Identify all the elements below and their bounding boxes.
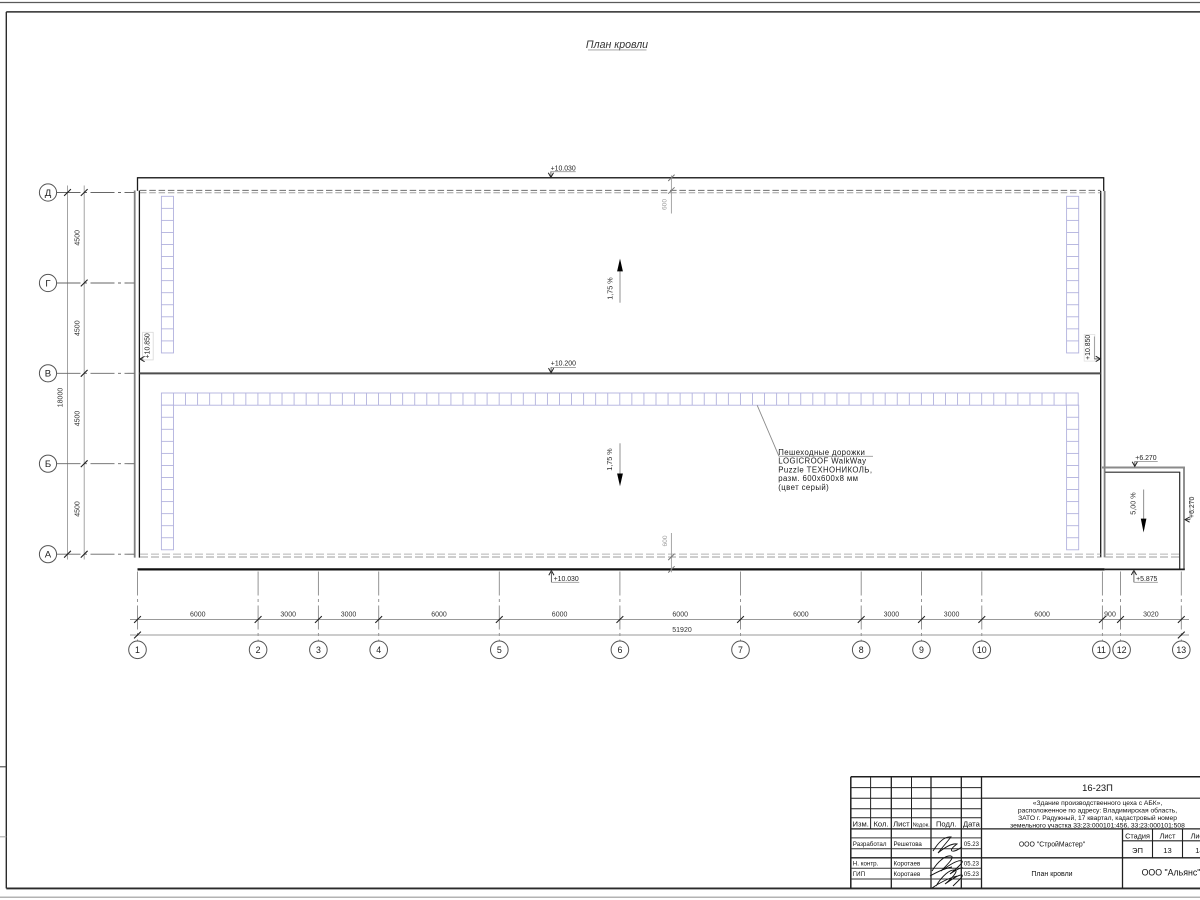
- svg-text:№док.: №док.: [913, 821, 931, 828]
- svg-text:11: 11: [1097, 645, 1106, 655]
- svg-text:Лист: Лист: [1191, 832, 1200, 841]
- svg-text:4500: 4500: [74, 501, 81, 517]
- svg-text:900: 900: [1104, 612, 1116, 619]
- svg-text:разм. 600х600х8 мм: разм. 600х600х8 мм: [778, 474, 858, 483]
- svg-text:Пешеходные дорожки: Пешеходные дорожки: [778, 448, 865, 457]
- svg-text:ЭП: ЭП: [1132, 846, 1143, 855]
- svg-text:Puzzle ТЕХНОНИКОЛЬ,: Puzzle ТЕХНОНИКОЛЬ,: [778, 465, 872, 474]
- svg-text:Стадия: Стадия: [1125, 832, 1150, 841]
- svg-text:10: 10: [977, 645, 987, 655]
- svg-text:5: 5: [497, 645, 502, 655]
- svg-text:3020: 3020: [1143, 612, 1159, 619]
- svg-text:18000: 18000: [58, 388, 65, 408]
- svg-text:План кровли: План кровли: [586, 39, 648, 51]
- svg-text:+10.850: +10.850: [1085, 335, 1092, 360]
- svg-text:Дата: Дата: [963, 820, 981, 829]
- svg-text:Коротаев: Коротаев: [894, 871, 921, 878]
- svg-text:2: 2: [256, 645, 261, 655]
- svg-text:1: 1: [135, 645, 140, 655]
- svg-text:Кол.: Кол.: [873, 820, 888, 829]
- svg-text:3000: 3000: [341, 612, 357, 619]
- svg-text:Решетова: Решетова: [894, 841, 923, 848]
- svg-text:расположенное по адресу: Влади: расположенное по адресу: Владимирская об…: [1018, 807, 1177, 815]
- svg-text:13: 13: [1163, 846, 1171, 855]
- svg-text:8: 8: [859, 645, 864, 655]
- svg-text:«Здание производственного цеха: «Здание производственного цеха с АБК»,: [1033, 800, 1163, 807]
- svg-text:Изм.: Изм.: [853, 820, 869, 829]
- svg-text:А: А: [45, 550, 52, 561]
- svg-text:ООО "СтройМастер": ООО "СтройМастер": [1019, 840, 1086, 848]
- svg-text:Подл.: Подл.: [936, 820, 957, 829]
- svg-text:LOGICROOF WalkWay: LOGICROOF WalkWay: [778, 457, 866, 466]
- svg-text:1,75 %: 1,75 %: [605, 448, 614, 471]
- svg-text:(цвет серый): (цвет серый): [778, 483, 829, 492]
- svg-text:План кровли: План кровли: [1031, 871, 1072, 878]
- svg-text:6000: 6000: [190, 612, 206, 619]
- svg-text:3000: 3000: [280, 612, 296, 619]
- svg-text:Лист: Лист: [893, 820, 910, 829]
- svg-text:600: 600: [662, 199, 669, 210]
- svg-text:+10.200: +10.200: [551, 360, 576, 367]
- svg-text:В: В: [45, 369, 51, 380]
- svg-text:9: 9: [919, 645, 924, 655]
- svg-text:4500: 4500: [74, 320, 81, 336]
- svg-text:7: 7: [738, 645, 743, 655]
- svg-text:6000: 6000: [672, 612, 688, 619]
- svg-text:3: 3: [316, 645, 321, 655]
- svg-text:6000: 6000: [793, 612, 809, 619]
- svg-text:05.23: 05.23: [964, 872, 980, 878]
- svg-text:Д: Д: [45, 188, 52, 199]
- svg-text:4500: 4500: [74, 411, 81, 427]
- svg-text:1,75 %: 1,75 %: [605, 277, 614, 300]
- svg-text:6000: 6000: [431, 612, 447, 619]
- svg-text:6: 6: [617, 645, 622, 655]
- svg-text:6000: 6000: [552, 612, 568, 619]
- svg-text:05.23: 05.23: [964, 862, 980, 868]
- svg-text:Разработал: Разработал: [853, 841, 887, 848]
- svg-text:ООО "Альянс": ООО "Альянс": [1142, 867, 1200, 877]
- svg-text:Коротаев: Коротаев: [894, 861, 921, 868]
- svg-text:ГИП: ГИП: [853, 871, 865, 878]
- svg-text:5,00 %: 5,00 %: [1129, 492, 1138, 515]
- svg-text:05.23: 05.23: [964, 842, 980, 848]
- svg-text:Б: Б: [45, 459, 51, 470]
- svg-text:51920: 51920: [672, 627, 692, 634]
- svg-text:4500: 4500: [74, 230, 81, 246]
- svg-text:+10.850: +10.850: [144, 333, 151, 358]
- svg-text:ЗАТО г. Радужный, 17 квартал,: ЗАТО г. Радужный, 17 квартал, кадастровы…: [1018, 814, 1177, 822]
- svg-text:12: 12: [1117, 645, 1127, 655]
- svg-text:Г: Г: [45, 278, 51, 289]
- svg-text:Н. контр.: Н. контр.: [853, 861, 879, 868]
- svg-text:16-23П: 16-23П: [1082, 782, 1113, 793]
- svg-text:600: 600: [662, 535, 669, 546]
- svg-text:Лист: Лист: [1160, 832, 1177, 841]
- svg-text:3000: 3000: [884, 612, 900, 619]
- svg-text:4: 4: [376, 645, 381, 655]
- svg-text:земельного участка 33:23:00010: земельного участка 33:23:000101:456, 33:…: [1010, 822, 1185, 829]
- svg-text:3000: 3000: [944, 612, 960, 619]
- svg-text:6000: 6000: [1034, 612, 1050, 619]
- svg-text:14: 14: [1195, 846, 1200, 855]
- svg-text:13: 13: [1176, 645, 1186, 655]
